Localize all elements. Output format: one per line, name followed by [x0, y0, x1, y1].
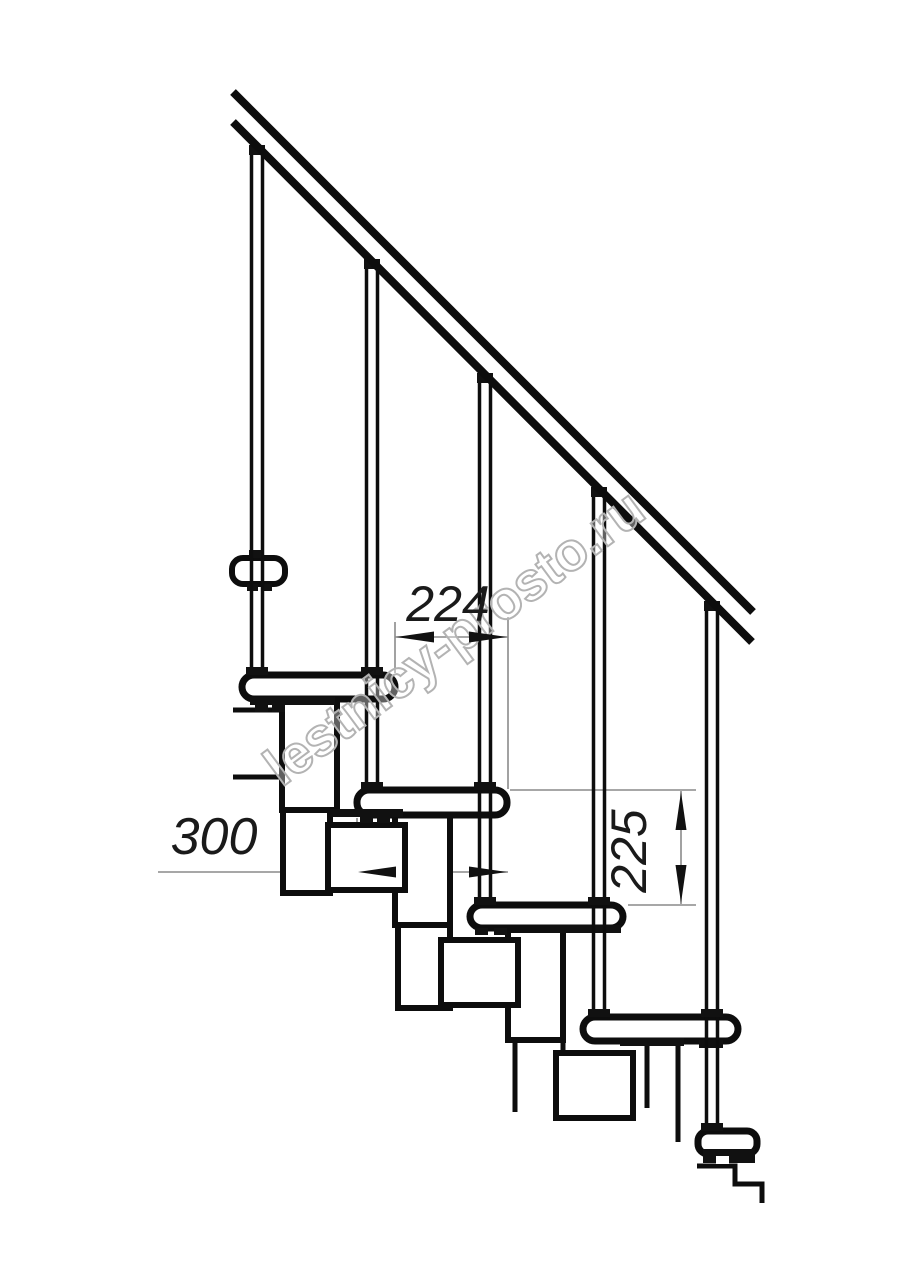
baluster-collar: [701, 1009, 723, 1017]
bracket-tab: [699, 1040, 723, 1048]
handrail-end-bracket: [232, 558, 285, 584]
baluster-collar: [701, 1123, 723, 1131]
baluster-5: [707, 608, 718, 1127]
dimension-label-300: 300: [171, 808, 258, 866]
bracket-wedge-notch: [716, 1156, 729, 1164]
baluster-1: [252, 153, 263, 669]
baluster-collar: [361, 782, 383, 790]
arrow-300-right: [469, 867, 507, 878]
baluster-collar: [588, 1009, 610, 1017]
arrow-225-down: [676, 865, 687, 903]
column-under-tread-1-lower: [283, 810, 330, 893]
module-box-4: [556, 1053, 633, 1118]
bracket-bar-4: [620, 1038, 684, 1046]
handrail: [233, 92, 753, 642]
bracket-tab: [377, 816, 390, 823]
handrail-top-edge: [233, 92, 753, 612]
tread-3: [470, 905, 623, 928]
dimension-label-225: 225: [601, 809, 657, 894]
bracket-tab: [255, 705, 268, 712]
bottom-cutoff-line: [697, 1166, 762, 1203]
tread-4: [583, 1017, 738, 1041]
arrow-225-up: [676, 792, 687, 830]
module-box-3: [441, 940, 518, 1005]
baluster-collar: [474, 782, 496, 790]
baluster-4: [594, 494, 605, 1012]
bracket-tab: [475, 928, 488, 935]
bracket-tab: [494, 928, 507, 935]
bracket-tab: [360, 816, 373, 823]
staircase-technical-drawing: lestnicy-prosto.ru 224 300 225: [0, 0, 914, 1280]
module-box-2: [328, 825, 405, 890]
bracket-tab: [272, 705, 285, 712]
drawing-canvas: lestnicy-prosto.ru 224 300 225: [0, 0, 914, 1280]
dimension-label-224: 224: [405, 576, 489, 632]
baluster-collar: [588, 897, 610, 905]
baluster-collar: [246, 667, 268, 675]
bracket-bar-2: [330, 809, 403, 817]
bracket-bar-3: [550, 925, 621, 933]
baluster-collar: [474, 897, 496, 905]
handrail-bottom-edge: [233, 122, 752, 642]
stair-structure: [232, 92, 762, 1203]
